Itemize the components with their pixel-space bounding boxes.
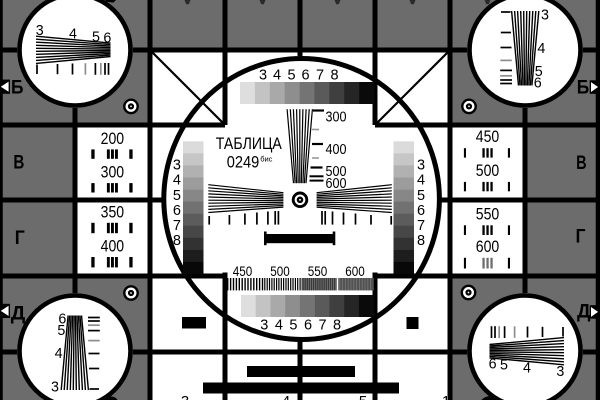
svg-text:7: 7 — [316, 68, 324, 84]
svg-text:7: 7 — [173, 218, 181, 234]
svg-text:300: 300 — [326, 109, 347, 125]
svg-text:8: 8 — [173, 233, 181, 249]
svg-text:3: 3 — [541, 8, 549, 24]
svg-text:4: 4 — [282, 393, 290, 400]
svg-text:5: 5 — [359, 393, 367, 400]
svg-text:6: 6 — [304, 317, 312, 333]
svg-text:4: 4 — [417, 173, 425, 189]
svg-text:4: 4 — [55, 346, 63, 362]
svg-text:4: 4 — [173, 173, 181, 189]
svg-text:4: 4 — [273, 68, 281, 84]
svg-text:5: 5 — [92, 29, 100, 45]
svg-text:1: 1 — [442, 393, 450, 400]
svg-text:Б: Б — [11, 77, 24, 98]
svg-text:6: 6 — [103, 30, 111, 46]
svg-text:200: 200 — [101, 129, 125, 148]
svg-text:5: 5 — [173, 188, 181, 204]
svg-text:Д: Д — [11, 304, 26, 325]
svg-text:8: 8 — [417, 233, 425, 249]
svg-text:8: 8 — [330, 68, 338, 84]
svg-text:6: 6 — [534, 75, 542, 91]
svg-text:6: 6 — [417, 203, 425, 219]
svg-text:5: 5 — [289, 317, 297, 333]
svg-text:3: 3 — [259, 68, 267, 84]
svg-text:7: 7 — [417, 218, 425, 234]
svg-text:600: 600 — [476, 237, 500, 256]
svg-text:3: 3 — [51, 379, 59, 395]
svg-text:500: 500 — [476, 161, 500, 180]
svg-text:4: 4 — [537, 41, 545, 57]
svg-text:600: 600 — [345, 263, 365, 279]
svg-text:400: 400 — [326, 142, 347, 158]
svg-text:ТАБЛИЦА: ТАБЛИЦА — [216, 135, 282, 153]
svg-text:Г: Г — [15, 228, 25, 249]
svg-text:3: 3 — [181, 393, 189, 400]
svg-text:5: 5 — [500, 358, 508, 374]
svg-text:В: В — [576, 153, 587, 174]
svg-text:450: 450 — [233, 263, 253, 279]
svg-text:В: В — [13, 152, 24, 173]
svg-text:0249: 0249 — [227, 154, 260, 172]
svg-text:3: 3 — [417, 158, 425, 174]
svg-text:450: 450 — [476, 127, 500, 146]
svg-text:4: 4 — [69, 27, 77, 43]
svg-text:550: 550 — [476, 205, 500, 224]
svg-text:400: 400 — [101, 236, 125, 255]
svg-text:8: 8 — [333, 317, 341, 333]
svg-text:500: 500 — [270, 263, 290, 279]
svg-text:4: 4 — [275, 317, 283, 333]
svg-text:350: 350 — [101, 202, 125, 221]
svg-text:550: 550 — [308, 263, 328, 279]
svg-text:4: 4 — [523, 360, 531, 376]
svg-text:3: 3 — [173, 158, 181, 174]
svg-text:6: 6 — [58, 312, 66, 328]
svg-text:Д: Д — [577, 302, 591, 323]
svg-text:бис: бис — [260, 155, 272, 164]
svg-text:Г: Г — [576, 227, 586, 248]
svg-text:6: 6 — [489, 357, 497, 373]
svg-text:6: 6 — [173, 203, 181, 219]
svg-text:Б: Б — [577, 78, 590, 99]
svg-text:3: 3 — [556, 364, 564, 380]
svg-text:300: 300 — [101, 163, 125, 182]
svg-text:6: 6 — [301, 68, 309, 84]
svg-text:7: 7 — [318, 317, 326, 333]
svg-text:5: 5 — [287, 68, 295, 84]
svg-text:5: 5 — [417, 188, 425, 204]
svg-text:3: 3 — [260, 317, 268, 333]
svg-text:3: 3 — [36, 23, 44, 39]
